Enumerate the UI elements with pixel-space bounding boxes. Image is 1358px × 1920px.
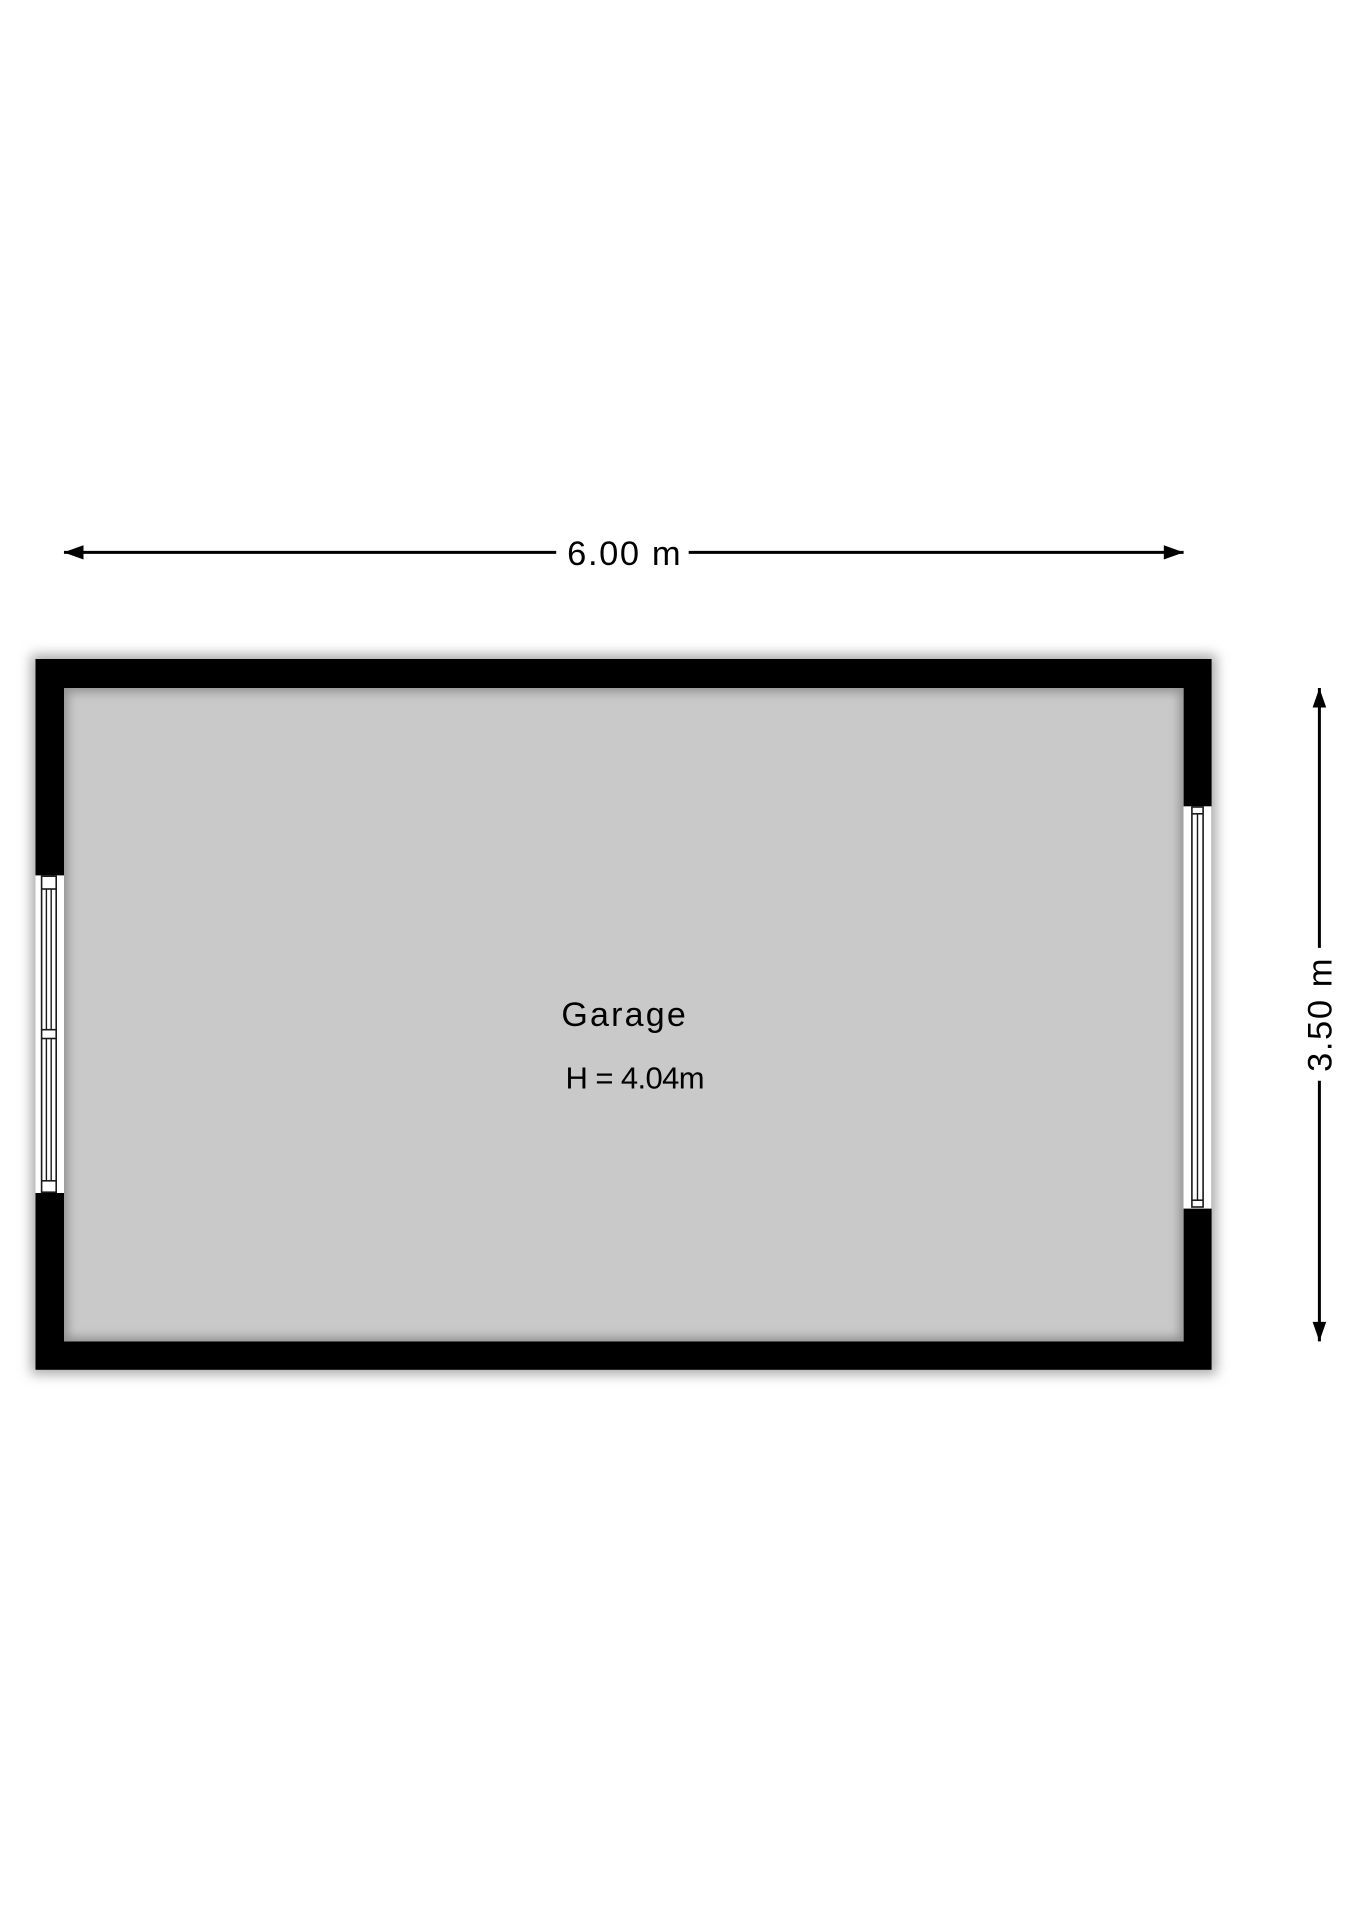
svg-text:3.50 m: 3.50 m: [1302, 957, 1340, 1072]
svg-text:H = 4.04m: H = 4.04m: [566, 1060, 704, 1095]
svg-text:Garage: Garage: [561, 996, 688, 1034]
svg-text:6.00 m: 6.00 m: [567, 535, 682, 573]
